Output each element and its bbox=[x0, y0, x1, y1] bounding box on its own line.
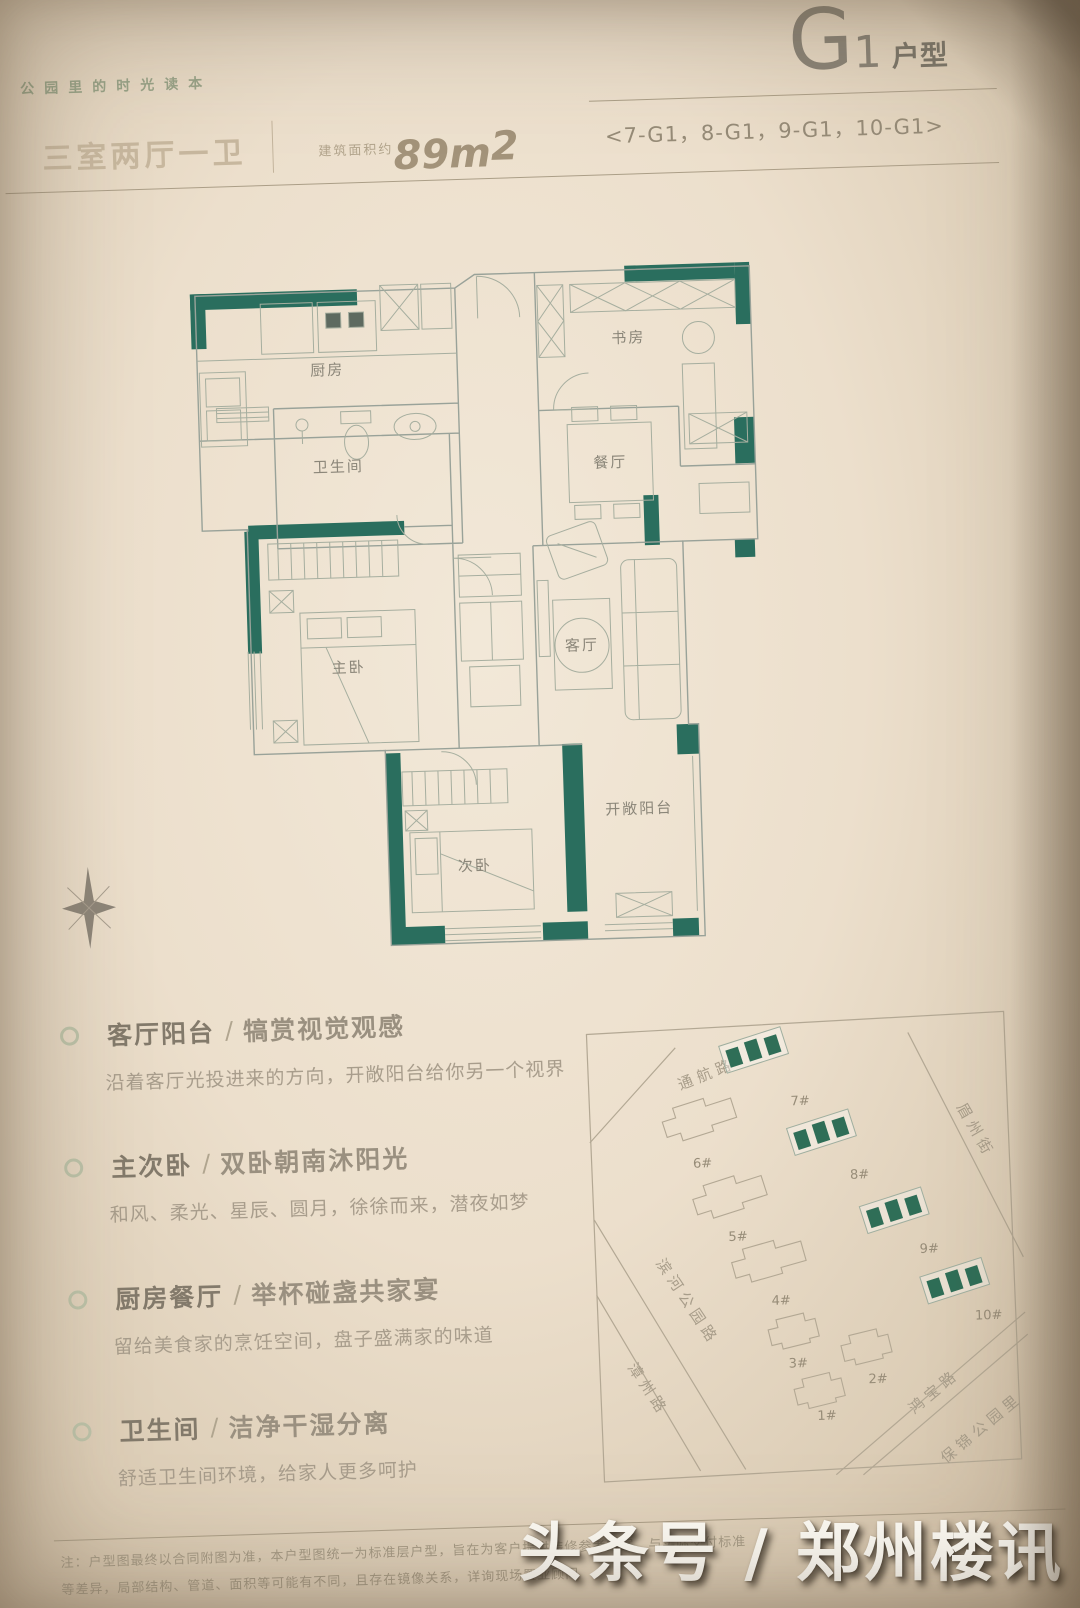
building-5 bbox=[690, 1168, 769, 1223]
unit-letter: G bbox=[786, 0, 854, 90]
feature-desc: 沿着客厅光投进来的方向，开敞阳台给你另一个视界 bbox=[105, 1054, 567, 1095]
interior-walls bbox=[194, 266, 764, 756]
site-map: 通航路 眉州街 滨河公园路 漳州路 鸿宝路 保锦公园里 bbox=[565, 981, 1033, 1497]
site-map-border bbox=[586, 1011, 1022, 1482]
building-6 bbox=[659, 1090, 738, 1145]
bullet-icon bbox=[68, 1290, 88, 1310]
building-2 bbox=[839, 1326, 893, 1367]
feature-bathroom: 卫生间/洁净干湿分离 舒适卫生间环境，给家人更多呵护 bbox=[72, 1398, 579, 1493]
room-label-bath: 卫生间 bbox=[313, 457, 365, 477]
feature-title: 厨房餐厅 bbox=[115, 1277, 224, 1316]
feature-divider: / bbox=[233, 1280, 242, 1308]
feature-list: 客厅阳台/犒赏视觉观感 沿着客厅光投进来的方向，开敞阳台给你另一个视界 主次卧/… bbox=[59, 1002, 580, 1546]
unit-suffix-label: 户型 bbox=[891, 39, 948, 74]
building-label-7: 7# bbox=[790, 1094, 810, 1110]
feature-bedrooms: 主次卧/双卧朝南沐阳光 和风、柔光、星辰、圆月，徐徐而来，潜夜如梦 bbox=[64, 1134, 571, 1229]
feature-subtitle: 举杯碰盏共家宴 bbox=[251, 1270, 441, 1312]
brochure-page: 公园里的时光读本 G1户型 三室两厅一卫 建筑面积约89m2 <7-G1，8-G… bbox=[0, 0, 1080, 1608]
door-arcs bbox=[389, 273, 601, 787]
road-label-left: 漳州路 bbox=[624, 1360, 672, 1420]
room-label-study: 书房 bbox=[611, 328, 646, 347]
living-furniture bbox=[535, 517, 681, 722]
feature-desc: 舒适卫生间环境，给家人更多呵护 bbox=[118, 1450, 580, 1491]
area-label: 建筑面积约 bbox=[318, 142, 393, 159]
feature-divider: / bbox=[202, 1149, 211, 1177]
feature-subtitle: 洁净干湿分离 bbox=[228, 1404, 391, 1445]
feature-subtitle: 双卧朝南沐阳光 bbox=[220, 1139, 410, 1181]
brochure-photo: 公园里的时光读本 G1户型 三室两厅一卫 建筑面积约89m2 <7-G1，8-G… bbox=[0, 0, 1080, 1608]
building-9-highlight bbox=[859, 1187, 929, 1233]
feature-subtitle: 犒赏视觉观感 bbox=[242, 1007, 405, 1048]
feature-desc: 和风、柔光、星辰、圆月，徐徐而来，潜夜如梦 bbox=[109, 1186, 571, 1227]
balcony-fittings bbox=[604, 892, 673, 931]
building-10-highlight bbox=[920, 1257, 990, 1303]
brand-slogan: 公园里的时光读本 bbox=[20, 73, 213, 99]
building-label-1: 1# bbox=[817, 1408, 837, 1424]
building-label-4: 4# bbox=[771, 1293, 791, 1309]
road-label-park: 滨河公园路 bbox=[652, 1255, 723, 1348]
building-label-2: 2# bbox=[868, 1372, 888, 1388]
building-label-9: 9# bbox=[919, 1241, 939, 1257]
area-superscript: 2 bbox=[490, 123, 519, 170]
building-8-highlight bbox=[787, 1109, 857, 1155]
feature-title: 卫生间 bbox=[119, 1410, 201, 1449]
room-label-kitchen: 厨房 bbox=[310, 361, 345, 380]
bullet-icon bbox=[72, 1422, 92, 1442]
feature-kitchen-dining: 厨房餐厅/举杯碰盏共家宴 留给美食家的烹饪空间，盘子盛满家的味道 bbox=[68, 1266, 575, 1361]
floor-plan: 厨房 卫生间 书房 餐厅 客厅 主卧 次卧 开敞阳台 bbox=[164, 243, 786, 962]
feature-title: 主次卧 bbox=[111, 1146, 193, 1185]
windows bbox=[248, 638, 698, 947]
building-label-10: 10# bbox=[975, 1308, 1003, 1324]
building-1 bbox=[792, 1370, 846, 1411]
building-3 bbox=[766, 1311, 820, 1352]
unit-list: <7-G1，8-G1，9-G1，10-G1> bbox=[605, 110, 945, 151]
building-label-8: 8# bbox=[850, 1167, 870, 1183]
room-label-balcony: 开敞阳台 bbox=[605, 799, 674, 819]
feature-divider: / bbox=[225, 1016, 234, 1044]
road-label-right: 眉州街 bbox=[953, 1100, 999, 1161]
unit-number: 1 bbox=[853, 27, 883, 79]
layout-title: 三室两厅一卫 bbox=[42, 128, 247, 178]
building-label-5: 5# bbox=[728, 1229, 748, 1245]
building-label-3: 3# bbox=[788, 1356, 808, 1372]
unit-type-logo: G1户型 bbox=[787, 0, 949, 83]
watermark: 头条号 / 郑州楼讯 bbox=[518, 1502, 1064, 1594]
feature-desc: 留给美食家的烹饪空间，盘子盛满家的味道 bbox=[113, 1318, 575, 1359]
header-vertical-divider bbox=[271, 121, 274, 173]
built-area: 建筑面积约89m2 bbox=[318, 123, 520, 182]
area-value: 89m bbox=[393, 130, 492, 179]
room-label-living: 客厅 bbox=[565, 636, 600, 655]
bullet-icon bbox=[64, 1158, 84, 1178]
feature-living-balcony: 客厅阳台/犒赏视觉观感 沿着客厅光投进来的方向，开敞阳台给你另一个视界 bbox=[59, 1002, 566, 1097]
bullet-icon bbox=[60, 1026, 80, 1046]
divider-under-logo bbox=[589, 88, 997, 102]
room-label-master: 主卧 bbox=[331, 658, 366, 677]
hallway-cabinets bbox=[458, 553, 525, 707]
room-label-second: 次卧 bbox=[458, 856, 493, 875]
road-label-bottom: 鸿宝路 bbox=[905, 1365, 963, 1417]
feature-divider: / bbox=[210, 1413, 219, 1441]
building-7-highlight bbox=[719, 1027, 789, 1073]
building-label-6: 6# bbox=[693, 1156, 713, 1172]
outer-walls bbox=[194, 266, 770, 951]
compass-icon bbox=[53, 864, 126, 952]
second-bedroom-furniture bbox=[402, 768, 534, 913]
master-furniture bbox=[268, 540, 419, 746]
feature-title: 客厅阳台 bbox=[106, 1013, 215, 1052]
room-label-dining: 餐厅 bbox=[593, 453, 628, 472]
